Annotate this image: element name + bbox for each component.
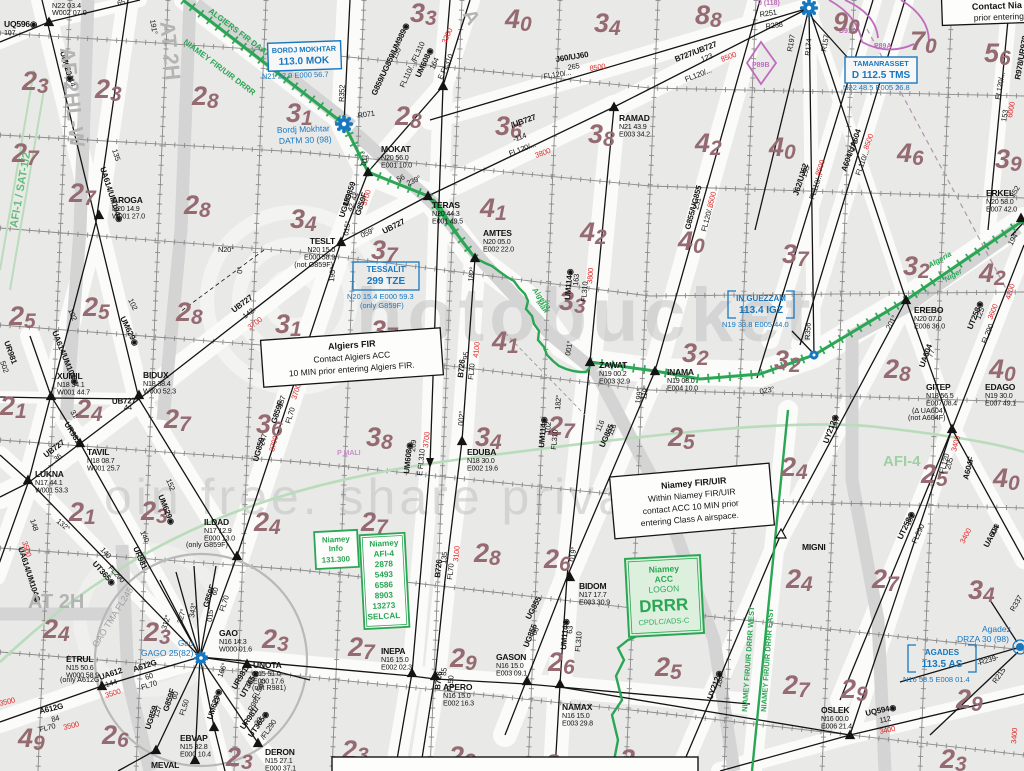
svg-text:95: 95 (461, 351, 471, 360)
svg-text:R356: R356 (803, 323, 813, 340)
svg-text:Agadez: Agadez (982, 624, 1011, 634)
svg-text:AFI-4: AFI-4 (373, 549, 394, 559)
svg-text:3100: 3100 (451, 545, 462, 562)
svg-text:P MALI: P MALI (337, 450, 361, 457)
svg-text:195°: 195° (327, 267, 337, 283)
svg-text:E007 49.1: E007 49.1 (985, 399, 1016, 408)
svg-text:TAMANRASSET: TAMANRASSET (853, 59, 909, 68)
svg-text:W001 25.7: W001 25.7 (87, 464, 120, 473)
svg-text:63: 63 (565, 625, 575, 634)
svg-text:3400: 3400 (1009, 728, 1019, 745)
svg-text:DATM 30 (98): DATM 30 (98) (279, 134, 332, 146)
svg-text:E002 22.0: E002 22.0 (483, 245, 514, 254)
svg-text:(not A604F): (not A604F) (908, 413, 946, 422)
svg-text:W002 07.0: W002 07.0 (52, 8, 87, 17)
svg-text:107: 107 (4, 28, 16, 37)
svg-text:85: 85 (439, 667, 449, 676)
svg-text:4100: 4100 (471, 341, 482, 358)
svg-text:(only G859F): (only G859F) (186, 540, 228, 549)
svg-text:5493: 5493 (375, 570, 394, 580)
svg-text:N19 33.8 E005 44.0: N19 33.8 E005 44.0 (722, 320, 789, 329)
svg-text:DRRR: DRRR (639, 595, 689, 617)
svg-text:FL70: FL70 (445, 563, 456, 580)
svg-text:AT 2H: AT 2H (28, 591, 84, 613)
svg-text:002°: 002° (456, 410, 467, 426)
svg-text:W000 01.6: W000 01.6 (219, 645, 252, 654)
svg-text:Contact Nia: Contact Nia (972, 0, 1023, 12)
svg-text:0 (118): 0 (118) (758, 0, 780, 7)
svg-text:E006 21.4: E006 21.4 (821, 722, 852, 731)
svg-text:R174: R174 (803, 38, 813, 56)
svg-text:113.0 MOK: 113.0 MOK (278, 55, 330, 68)
svg-text:MIGNI: MIGNI (802, 542, 826, 552)
svg-text:0°: 0° (235, 266, 245, 274)
svg-text:SELCAL: SELCAL (367, 611, 400, 622)
svg-text:E003 09.1: E003 09.1 (496, 669, 527, 678)
svg-text:FL50: FL50 (445, 675, 456, 692)
svg-text:113.5 AS: 113.5 AS (922, 659, 963, 670)
svg-text:W001 53.3: W001 53.3 (35, 486, 68, 495)
svg-text:LOGON: LOGON (648, 583, 679, 595)
svg-text:N16 58.5 E008 01.4: N16 58.5 E008 01.4 (903, 675, 970, 684)
svg-text:182°: 182° (553, 395, 563, 411)
svg-text:8903: 8903 (375, 591, 394, 601)
svg-text:N20 15.4 E000 59.3: N20 15.4 E000 59.3 (347, 292, 414, 301)
svg-text:MEVAL: MEVAL (151, 760, 179, 770)
svg-text:GAGO 25(82): GAGO 25(82) (141, 648, 194, 658)
svg-text:135: 135 (439, 551, 449, 564)
svg-text:(not G859F): (not G859F) (294, 260, 333, 269)
svg-text:E000 37.1: E000 37.1 (265, 764, 296, 771)
svg-text:299 TZE: 299 TZE (367, 276, 406, 287)
svg-text:E000 10.4: E000 10.4 (180, 750, 211, 759)
svg-text:163: 163 (571, 273, 581, 286)
svg-text:N20°: N20° (218, 245, 234, 254)
svg-text:13273: 13273 (372, 601, 396, 611)
svg-text:E002 16.3: E002 16.3 (443, 699, 474, 708)
svg-text:prior entering: prior entering (974, 11, 1024, 23)
svg-text:FL310: FL310 (549, 429, 560, 450)
svg-text:P89A: P89A (874, 43, 892, 50)
svg-text:Niamey: Niamey (369, 538, 399, 549)
svg-text:DRZA 30 (98): DRZA 30 (98) (957, 634, 1009, 644)
svg-text:44: 44 (124, 403, 132, 412)
svg-text:E003 29.8: E003 29.8 (562, 719, 593, 728)
svg-text:E001 10.0: E001 10.0 (381, 161, 412, 170)
svg-text:113.4 IGZ: 113.4 IGZ (739, 305, 783, 316)
svg-text:D 112.5 TMS: D 112.5 TMS (852, 70, 911, 81)
svg-text:131.300: 131.300 (322, 554, 351, 564)
svg-text:E007 42.0: E007 42.0 (986, 205, 1017, 214)
svg-text:E002 19.6: E002 19.6 (467, 464, 498, 473)
svg-text:IN GUEZZAM: IN GUEZZAM (736, 294, 786, 303)
svg-text:E003 34.2: E003 34.2 (619, 130, 650, 139)
svg-text:AFI-4: AFI-4 (883, 453, 921, 470)
svg-text:FL310: FL310 (573, 631, 584, 652)
svg-text:(only A612G): (only A612G) (60, 675, 102, 684)
svg-text:W001 44.7: W001 44.7 (57, 388, 90, 397)
svg-text:6586: 6586 (375, 580, 394, 590)
svg-text:Gao.: Gao. (178, 639, 195, 648)
svg-text:3700: 3700 (421, 431, 432, 448)
svg-text:E003 30.9: E003 30.9 (579, 598, 610, 607)
svg-text:TESSALIT: TESSALIT (367, 265, 406, 274)
svg-text:Bordj Mokhtar: Bordj Mokhtar (277, 123, 330, 135)
svg-text:(only G859F): (only G859F) (360, 301, 404, 310)
svg-text:E003 32.9: E003 32.9 (599, 377, 630, 386)
svg-text:Info: Info (328, 544, 343, 554)
svg-text:E004 10.0: E004 10.0 (667, 384, 698, 393)
svg-text:R352: R352 (337, 85, 347, 102)
svg-text:AGADES: AGADES (925, 648, 960, 657)
svg-text:N22 48.5 E005 26.8: N22 48.5 E005 26.8 (843, 83, 910, 92)
svg-text:E006 36.0: E006 36.0 (914, 322, 945, 331)
svg-text:FL70: FL70 (466, 363, 477, 380)
svg-text:015°: 015° (205, 607, 215, 623)
svg-text:2878: 2878 (375, 559, 394, 569)
svg-text:P89B: P89B (752, 62, 770, 69)
svg-text:3800: 3800 (585, 268, 595, 285)
svg-text:E002 02.3: E002 02.3 (381, 663, 412, 672)
svg-text:E001 49.5: E001 49.5 (432, 217, 463, 226)
svg-text:W000 52.3: W000 52.3 (143, 387, 176, 396)
